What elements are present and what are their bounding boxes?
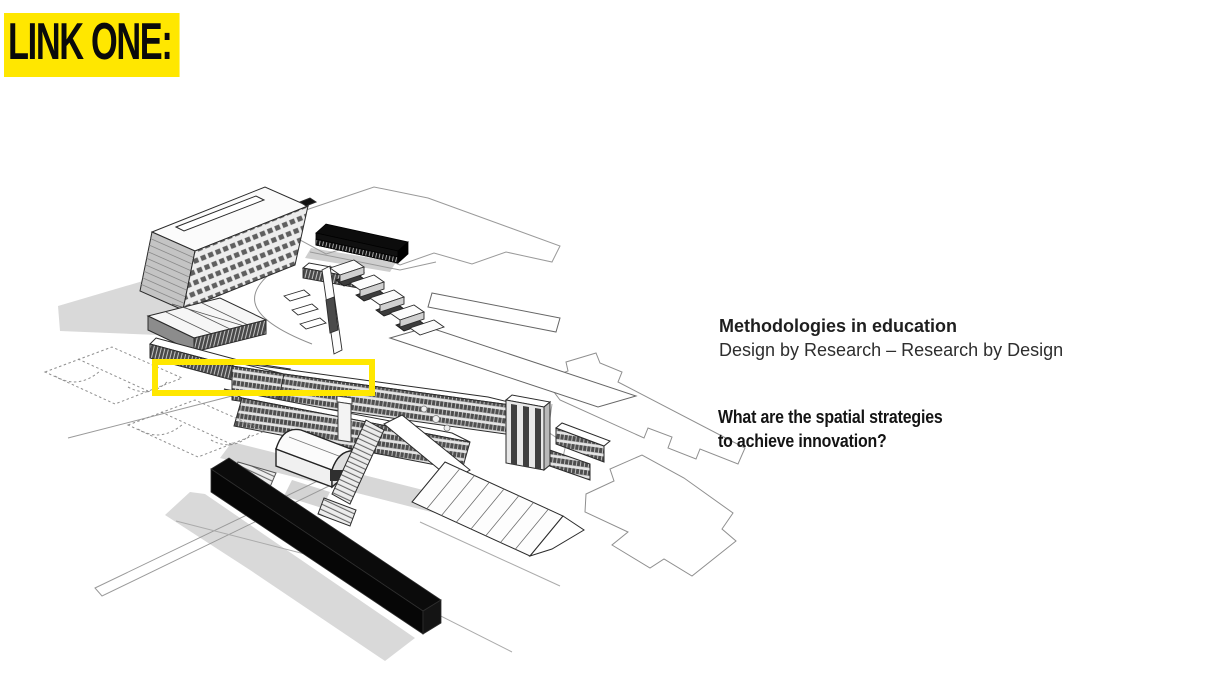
end-tower (506, 395, 550, 470)
heading-block: Methodologies in education Design by Res… (719, 315, 1063, 363)
stepped-plaza (412, 462, 584, 556)
tall-slab-building (140, 187, 316, 310)
heading-title: Methodologies in education (719, 315, 1063, 339)
question-block: What are the spatial strategies to achie… (718, 405, 943, 453)
presentation-slide: LINK ONE: (0, 0, 1213, 682)
heading-subtitle: Design by Research – Research by Design (719, 339, 1063, 363)
question-line-2: to achieve innovation? (718, 429, 943, 453)
service-chimney (337, 396, 352, 442)
question-line-1: What are the spatial strategies (718, 405, 943, 429)
